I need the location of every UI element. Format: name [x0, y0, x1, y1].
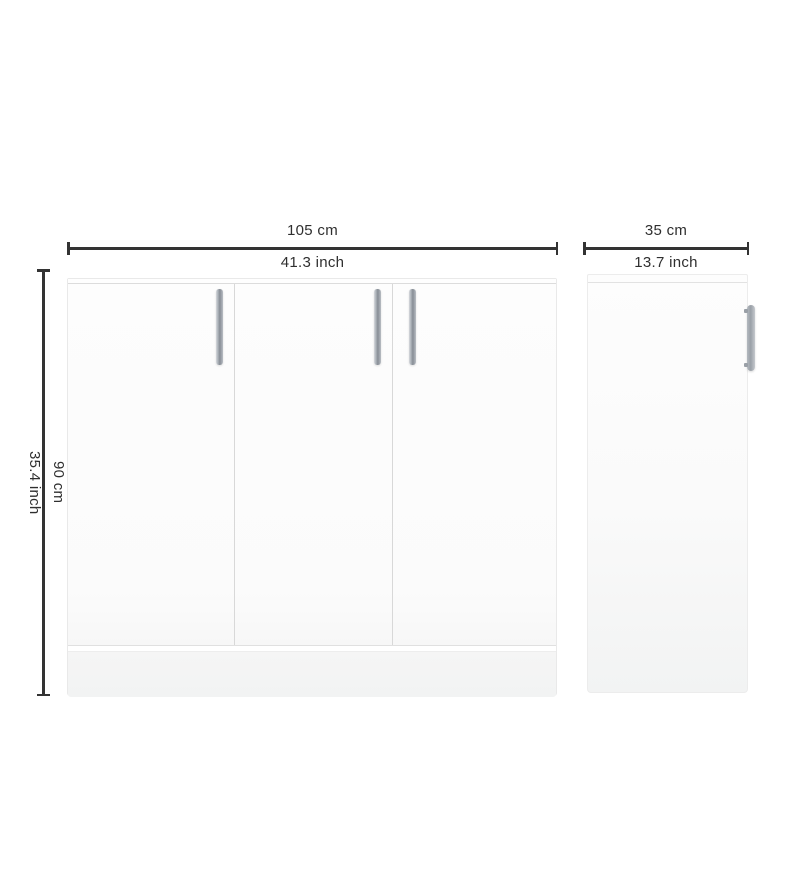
depth-dimension-line — [583, 247, 749, 250]
depth-label-inch: 13.7 inch — [583, 254, 749, 271]
height-dimension-line — [42, 269, 45, 696]
side-handle — [747, 305, 755, 371]
door-right — [393, 284, 556, 645]
door-left — [68, 284, 234, 645]
door-handle-middle — [374, 289, 381, 365]
width-dimension-line — [67, 247, 558, 250]
height-label-inch: 35.4 inch — [26, 269, 43, 696]
width-dimension: 105 cm 41.3 inch — [67, 222, 558, 278]
cabinet-doors — [68, 284, 556, 646]
width-label-inch: 41.3 inch — [67, 254, 558, 271]
door-handle-right — [409, 289, 416, 365]
cabinet-side-view — [587, 274, 748, 693]
height-label-cm: 90 cm — [50, 269, 67, 696]
height-dimension: 35.4 inch 90 cm — [24, 269, 70, 696]
depth-label-cm: 35 cm — [583, 222, 749, 239]
width-label-cm: 105 cm — [67, 222, 558, 239]
height-cap-bottom — [37, 694, 50, 697]
side-top-edge — [588, 275, 747, 283]
door-handle-left — [216, 289, 223, 365]
door-middle — [235, 284, 392, 645]
dimension-diagram: 105 cm 41.3 inch 35 cm 13.7 inch 35.4 in… — [0, 0, 809, 890]
cabinet-plinth — [68, 652, 556, 697]
depth-dimension: 35 cm 13.7 inch — [583, 222, 749, 278]
cabinet-front-view — [67, 278, 557, 696]
